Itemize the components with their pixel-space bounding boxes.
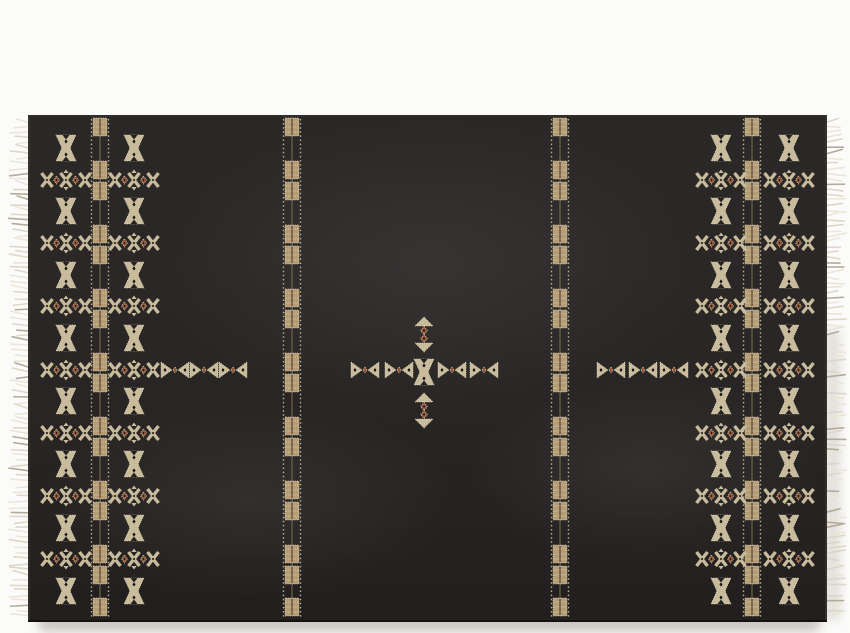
rug-product-image: [0, 0, 850, 633]
product-photo: [0, 0, 850, 633]
fringe-left: [9, 119, 31, 616]
